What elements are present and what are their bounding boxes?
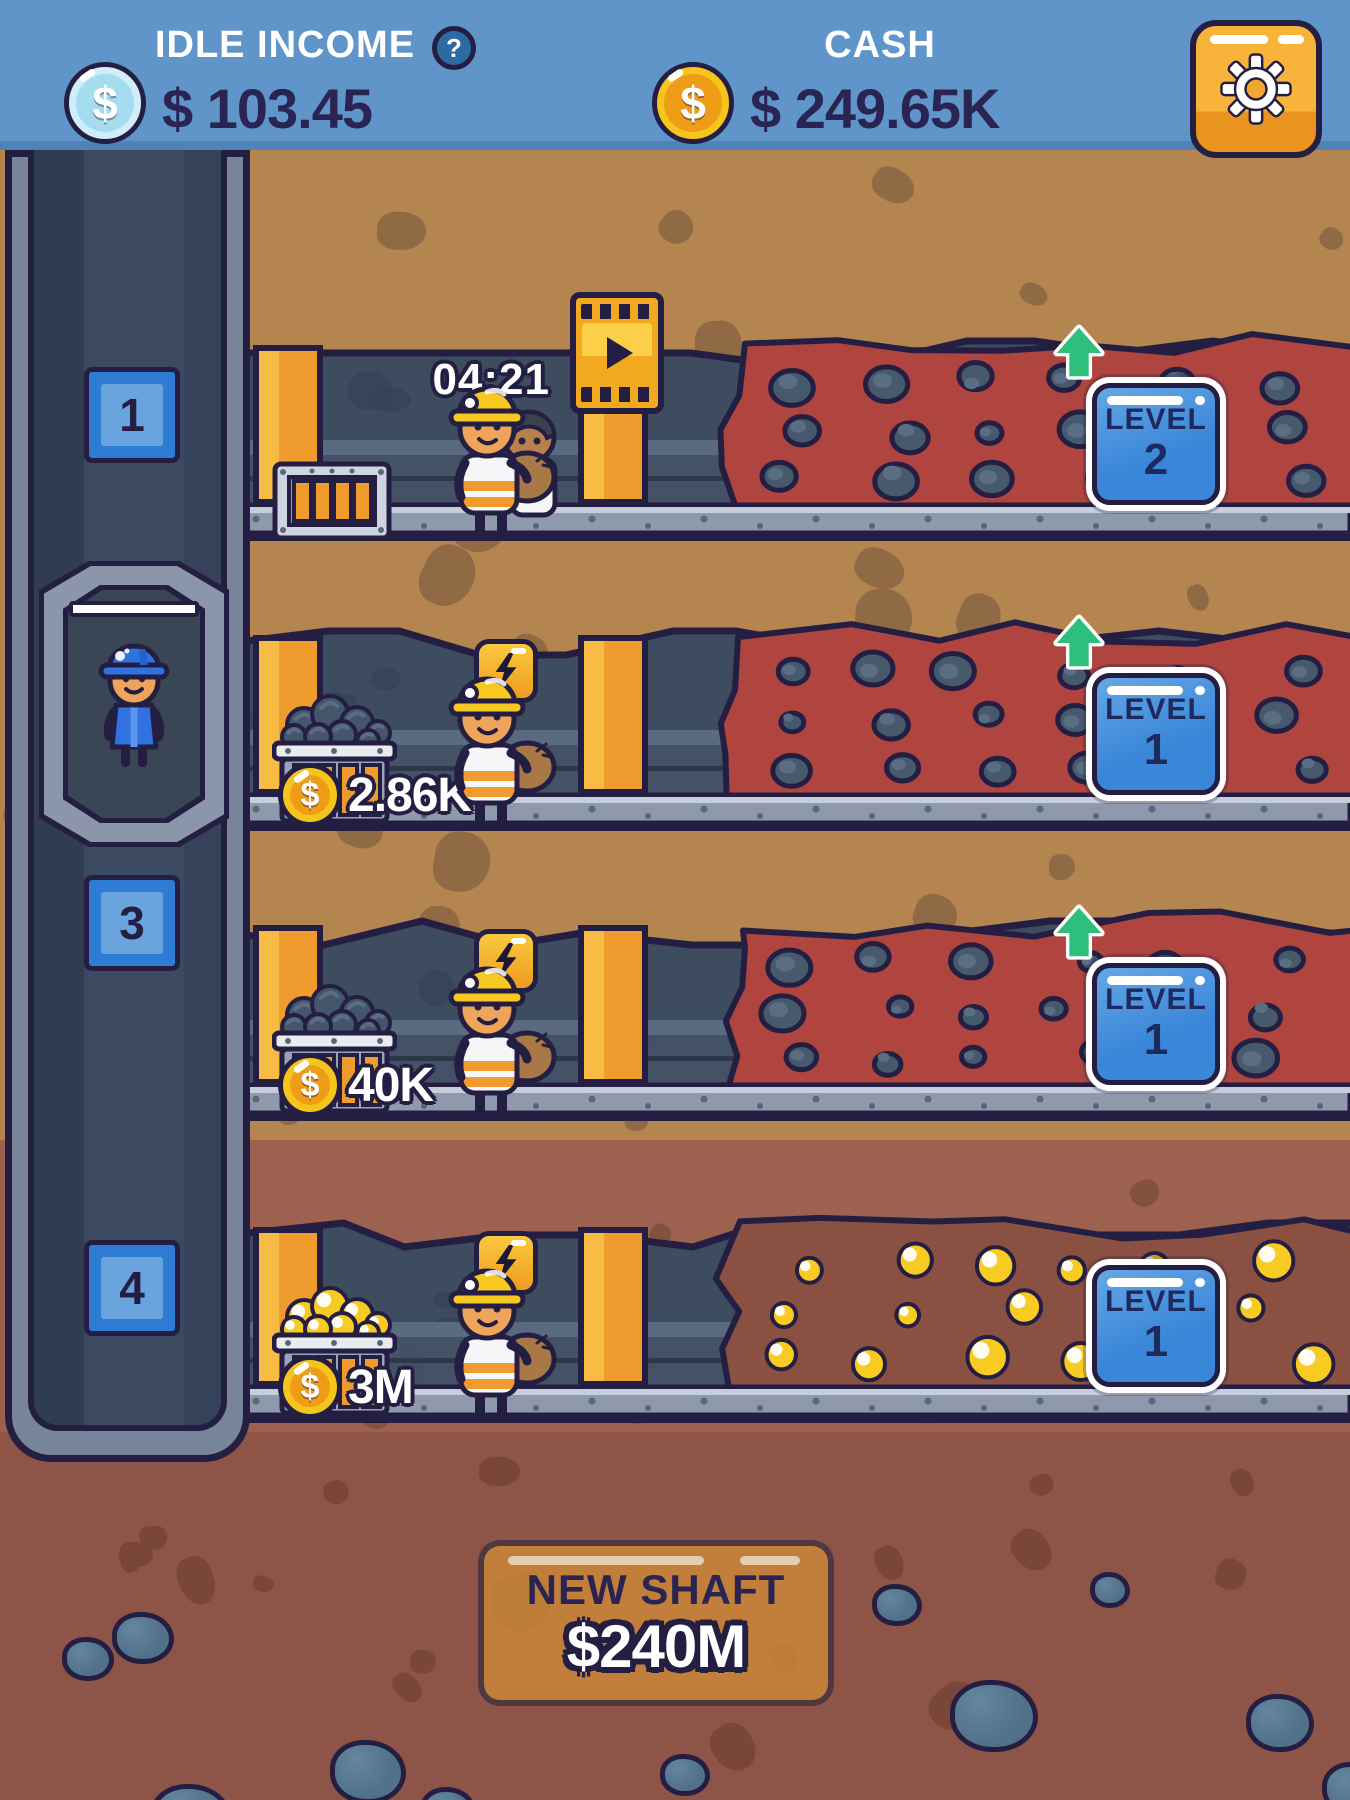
rock: [872, 1584, 922, 1626]
dirt-blob: [171, 1552, 221, 1610]
cash-coin-icon: $: [652, 62, 734, 144]
new-shaft-cost: $240M: [567, 1612, 745, 1681]
rock: [112, 1612, 174, 1664]
level-number: 1: [1144, 1317, 1168, 1367]
idle-income-value: $ 103.45: [162, 76, 372, 141]
level-number: 1: [1144, 1015, 1168, 1065]
coin-icon: $: [278, 1053, 342, 1117]
idle-coin-icon: $: [64, 62, 146, 144]
level-upgrade-button[interactable]: LEVEL 1: [1092, 673, 1220, 795]
miner-characters: [425, 359, 575, 539]
dirt-blob: [871, 1542, 909, 1585]
level-label: LEVEL: [1105, 1285, 1207, 1319]
dirt-blob: [1005, 1523, 1060, 1579]
support-pillar: [578, 405, 648, 505]
level-number: 1: [1144, 725, 1168, 775]
dirt-blob: [1026, 1472, 1056, 1500]
support-pillar: [578, 1227, 648, 1387]
upgrade-arrow-icon: [1050, 903, 1108, 965]
level-number: 2: [1144, 435, 1168, 485]
dirt-blob: [139, 1525, 167, 1550]
level-label: LEVEL: [1105, 983, 1207, 1017]
miner-character: [425, 939, 575, 1119]
rock: [1322, 1762, 1350, 1800]
cash-label: CASH: [770, 24, 990, 67]
elevator-car[interactable]: [39, 561, 229, 847]
level-upgrade-button[interactable]: LEVEL 1: [1092, 963, 1220, 1085]
coin-icon: $: [278, 1355, 342, 1419]
film-sprockets-icon: [581, 387, 653, 402]
dirt-blob: [867, 160, 921, 210]
play-icon: [582, 323, 652, 383]
film-sprockets-icon: [581, 304, 653, 319]
dirt-blob: [409, 1648, 439, 1676]
floor-badge-3: 3: [84, 875, 180, 971]
top-bar: IDLE INCOME ? $ $ 103.45 CASH $ $ 249.65…: [0, 0, 1350, 150]
video-boost-button[interactable]: [570, 292, 664, 414]
idle-income-label: IDLE INCOME: [150, 24, 420, 67]
dirt-blob: [704, 1716, 765, 1779]
elevator-progress-bar: [69, 601, 199, 617]
dirt-blob: [320, 1478, 350, 1508]
settings-button[interactable]: [1190, 20, 1322, 158]
help-icon[interactable]: ?: [432, 26, 476, 70]
floor-badge-1: 1: [84, 367, 180, 463]
miner-character: [425, 1241, 575, 1421]
idle-miner-game-screen: 04:21 LEVEL 2: [0, 0, 1350, 1800]
floor-badge-4: 4: [84, 1240, 180, 1336]
rock: [950, 1680, 1038, 1752]
level-label: LEVEL: [1105, 693, 1207, 727]
cart-value: 40K: [348, 1055, 433, 1117]
dirt-blob: [251, 1574, 276, 1595]
dirt-blob: [388, 1668, 427, 1708]
dirt-blob: [1212, 1555, 1250, 1595]
dirt-blob: [1227, 1466, 1258, 1501]
support-pillar: [578, 635, 648, 795]
level-upgrade-button[interactable]: LEVEL 1: [1092, 1265, 1220, 1387]
elevator-operator-character: [84, 623, 184, 773]
rock: [330, 1740, 406, 1800]
dirt-blob: [478, 1455, 520, 1487]
rock: [150, 1784, 232, 1800]
new-shaft-button[interactable]: NEW SHAFT $240M: [478, 1540, 834, 1706]
upgrade-arrow-icon: [1050, 613, 1108, 675]
cash-value: $ 249.65K: [750, 76, 999, 141]
rock: [420, 1787, 476, 1800]
cart-value: 3M: [348, 1357, 413, 1419]
elevator-shaft: 1 3 4: [5, 150, 250, 1462]
miner-character: [425, 649, 575, 829]
gear-icon: [1219, 52, 1293, 126]
rock: [660, 1754, 710, 1796]
upgrade-arrow-icon: [1050, 323, 1108, 385]
rock: [1090, 1572, 1130, 1608]
new-shaft-label: NEW SHAFT: [527, 1566, 786, 1614]
level-upgrade-button[interactable]: LEVEL 2: [1092, 383, 1220, 505]
rock: [1246, 1694, 1314, 1752]
support-pillar: [578, 925, 648, 1085]
level-label: LEVEL: [1105, 403, 1207, 437]
rock: [62, 1637, 114, 1681]
